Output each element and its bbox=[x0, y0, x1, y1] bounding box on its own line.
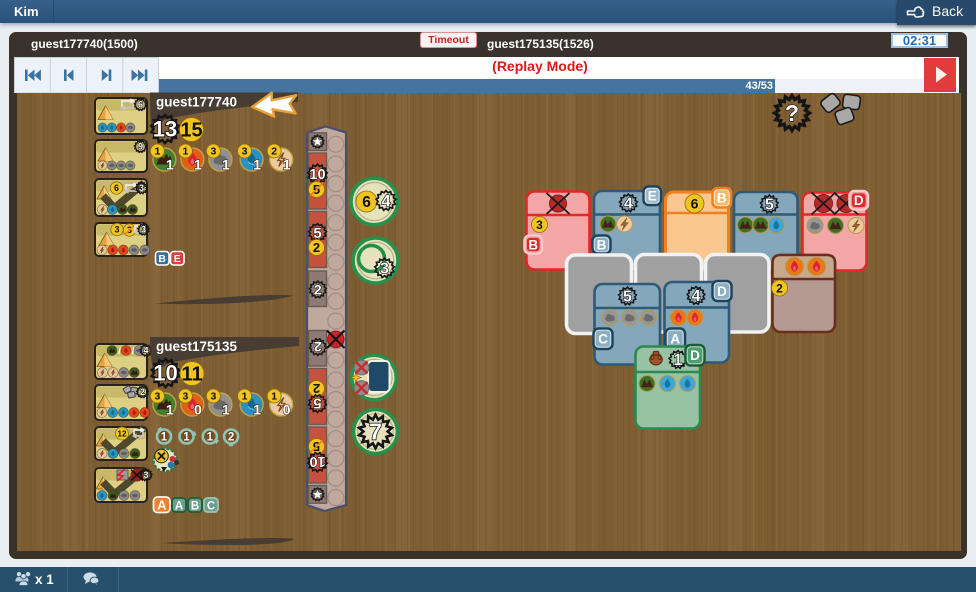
svg-text:10: 10 bbox=[309, 167, 325, 183]
svg-text:11: 11 bbox=[181, 364, 202, 386]
svg-text:3: 3 bbox=[154, 391, 160, 403]
svg-text:C: C bbox=[598, 332, 608, 347]
svg-text:2: 2 bbox=[313, 240, 320, 255]
svg-text:6: 6 bbox=[691, 196, 699, 212]
svg-text:1: 1 bbox=[253, 401, 261, 417]
svg-text:2: 2 bbox=[228, 432, 234, 444]
svg-text:B: B bbox=[528, 237, 538, 252]
svg-text:5: 5 bbox=[765, 197, 774, 214]
svg-text:15: 15 bbox=[180, 120, 202, 142]
svg-text:1: 1 bbox=[283, 156, 291, 172]
svg-text:9: 9 bbox=[138, 142, 143, 152]
svg-text:3: 3 bbox=[182, 391, 188, 403]
svg-text:10: 10 bbox=[309, 453, 325, 469]
svg-text:B: B bbox=[158, 253, 166, 265]
svg-text:3: 3 bbox=[143, 470, 148, 480]
svg-text:7: 7 bbox=[369, 419, 382, 445]
svg-text:D: D bbox=[717, 284, 727, 299]
svg-text:3: 3 bbox=[210, 391, 216, 403]
svg-text:2: 2 bbox=[271, 146, 277, 158]
svg-text:3: 3 bbox=[141, 225, 146, 235]
svg-text:1: 1 bbox=[166, 156, 174, 172]
svg-text:0: 0 bbox=[194, 401, 202, 417]
svg-text:A: A bbox=[157, 498, 167, 513]
svg-text:1: 1 bbox=[166, 401, 174, 417]
svg-text:1: 1 bbox=[222, 401, 230, 417]
svg-text:C: C bbox=[207, 500, 215, 512]
svg-text:A: A bbox=[670, 332, 680, 347]
svg-text:3: 3 bbox=[139, 183, 144, 193]
svg-text:2: 2 bbox=[314, 339, 322, 355]
svg-text:1: 1 bbox=[271, 391, 277, 403]
svg-text:2: 2 bbox=[776, 281, 783, 295]
svg-text:D: D bbox=[690, 348, 700, 363]
svg-text:B: B bbox=[191, 500, 199, 512]
svg-text:5: 5 bbox=[313, 394, 321, 411]
svg-text:E: E bbox=[174, 253, 181, 265]
svg-text:10: 10 bbox=[153, 361, 177, 386]
svg-text:guest177740: guest177740 bbox=[156, 95, 237, 110]
svg-text:1: 1 bbox=[183, 432, 190, 444]
svg-text:3: 3 bbox=[210, 146, 216, 158]
svg-text:4: 4 bbox=[381, 192, 391, 210]
svg-text:2: 2 bbox=[314, 281, 322, 297]
svg-text:6: 6 bbox=[138, 100, 143, 110]
svg-text:D: D bbox=[854, 193, 864, 208]
svg-text:?: ? bbox=[785, 100, 799, 126]
svg-text:E: E bbox=[648, 189, 657, 204]
svg-text:1: 1 bbox=[253, 156, 261, 172]
svg-text:1: 1 bbox=[207, 432, 214, 444]
svg-text:2: 2 bbox=[140, 387, 145, 397]
svg-text:13: 13 bbox=[153, 117, 177, 142]
svg-text:1: 1 bbox=[242, 391, 248, 403]
svg-text:1: 1 bbox=[182, 146, 188, 158]
svg-text:3: 3 bbox=[114, 225, 119, 235]
svg-text:1: 1 bbox=[222, 156, 230, 172]
svg-text:4: 4 bbox=[692, 288, 701, 305]
svg-text:4: 4 bbox=[624, 196, 633, 213]
svg-text:4: 4 bbox=[143, 346, 148, 356]
svg-text:6: 6 bbox=[362, 194, 371, 211]
svg-text:0: 0 bbox=[283, 401, 291, 417]
svg-text:1: 1 bbox=[674, 352, 683, 369]
svg-text:5: 5 bbox=[623, 289, 632, 306]
svg-text:6: 6 bbox=[114, 183, 119, 193]
svg-text:guest175135: guest175135 bbox=[156, 339, 238, 354]
svg-text:1: 1 bbox=[161, 432, 168, 444]
svg-text:3: 3 bbox=[536, 218, 543, 232]
svg-text:B: B bbox=[717, 191, 727, 206]
svg-text:3: 3 bbox=[242, 146, 248, 158]
svg-text:12: 12 bbox=[118, 429, 127, 438]
svg-text:B: B bbox=[597, 237, 607, 252]
svg-text:1: 1 bbox=[154, 146, 160, 158]
svg-text:A: A bbox=[175, 500, 183, 512]
svg-text:2: 2 bbox=[313, 381, 320, 396]
svg-text:1: 1 bbox=[194, 156, 202, 172]
svg-text:3: 3 bbox=[380, 261, 389, 278]
